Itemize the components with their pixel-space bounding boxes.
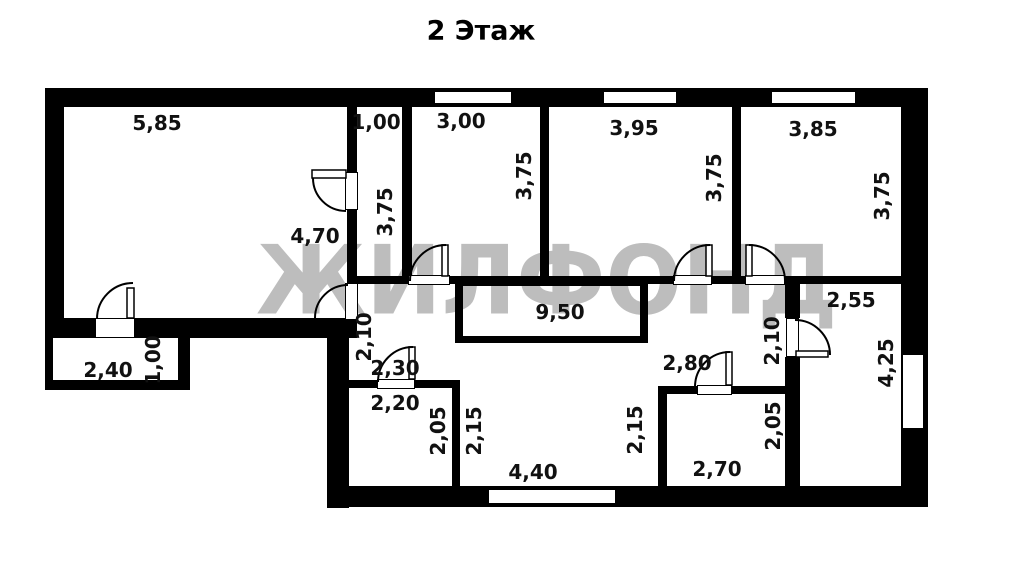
door-leaf-room3 <box>746 245 752 276</box>
dim-room2-width: 3,95 <box>609 116 658 140</box>
dim-room1-width: 3,00 <box>436 109 485 133</box>
dim-living-depth: 4,70 <box>290 224 339 248</box>
dim-nook-depth: 2,10 <box>352 312 376 361</box>
door-leaf-wc <box>726 352 732 385</box>
door-arc-room1 <box>410 245 446 281</box>
door-leaf-balcony <box>127 288 134 318</box>
door-swings-layer <box>0 0 1024 573</box>
door-leaf-living-closet <box>312 170 346 178</box>
door-arc-room3 <box>749 245 785 281</box>
dim-balcony-width: 2,40 <box>83 358 132 382</box>
dim-hall-right-width: 2,80 <box>662 351 711 375</box>
floor-plan-page: 2 Этаж ЖИЛФОНД <box>0 0 1024 573</box>
dim-balcony-depth: 1,00 <box>141 335 165 384</box>
dim-stairwell-size: 9,50 <box>535 300 584 324</box>
dim-nook-width: 2,30 <box>370 356 419 380</box>
page-title: 2 Этаж <box>427 16 536 47</box>
door-arc-bedroom <box>795 320 830 355</box>
dim-bath-width: 2,20 <box>370 391 419 415</box>
dim-room3-width: 3,85 <box>788 117 837 141</box>
dim-room2-depth: 3,75 <box>702 153 726 202</box>
dim-corridor-right-depth: 2,10 <box>760 316 784 365</box>
dim-hall-mid-depth: 2,15 <box>623 405 647 454</box>
dim-room1-depth: 3,75 <box>512 151 536 200</box>
dim-bath-depth: 2,05 <box>426 406 450 455</box>
dim-wc-depth: 2,05 <box>761 401 785 450</box>
dim-living-width: 5,85 <box>132 111 181 135</box>
dim-bedroom-depth: 4,25 <box>874 338 898 387</box>
dim-hall-left-depth: 2,15 <box>462 406 486 455</box>
door-leaf-bedroom <box>796 351 828 357</box>
door-leaf-room2 <box>706 245 712 276</box>
door-arc-living-closet <box>313 178 346 211</box>
door-leaf-room1 <box>442 245 448 276</box>
dim-closet-depth: 3,75 <box>373 187 397 236</box>
dim-closet-width: 1,00 <box>351 110 400 134</box>
door-arc-living-hall <box>315 285 348 318</box>
dim-room3-depth: 3,75 <box>870 171 894 220</box>
dim-wc-width: 2,70 <box>692 457 741 481</box>
dim-hall-width: 4,40 <box>508 460 557 484</box>
dim-bedroom-width: 2,55 <box>826 288 875 312</box>
door-arc-room2 <box>674 245 710 281</box>
